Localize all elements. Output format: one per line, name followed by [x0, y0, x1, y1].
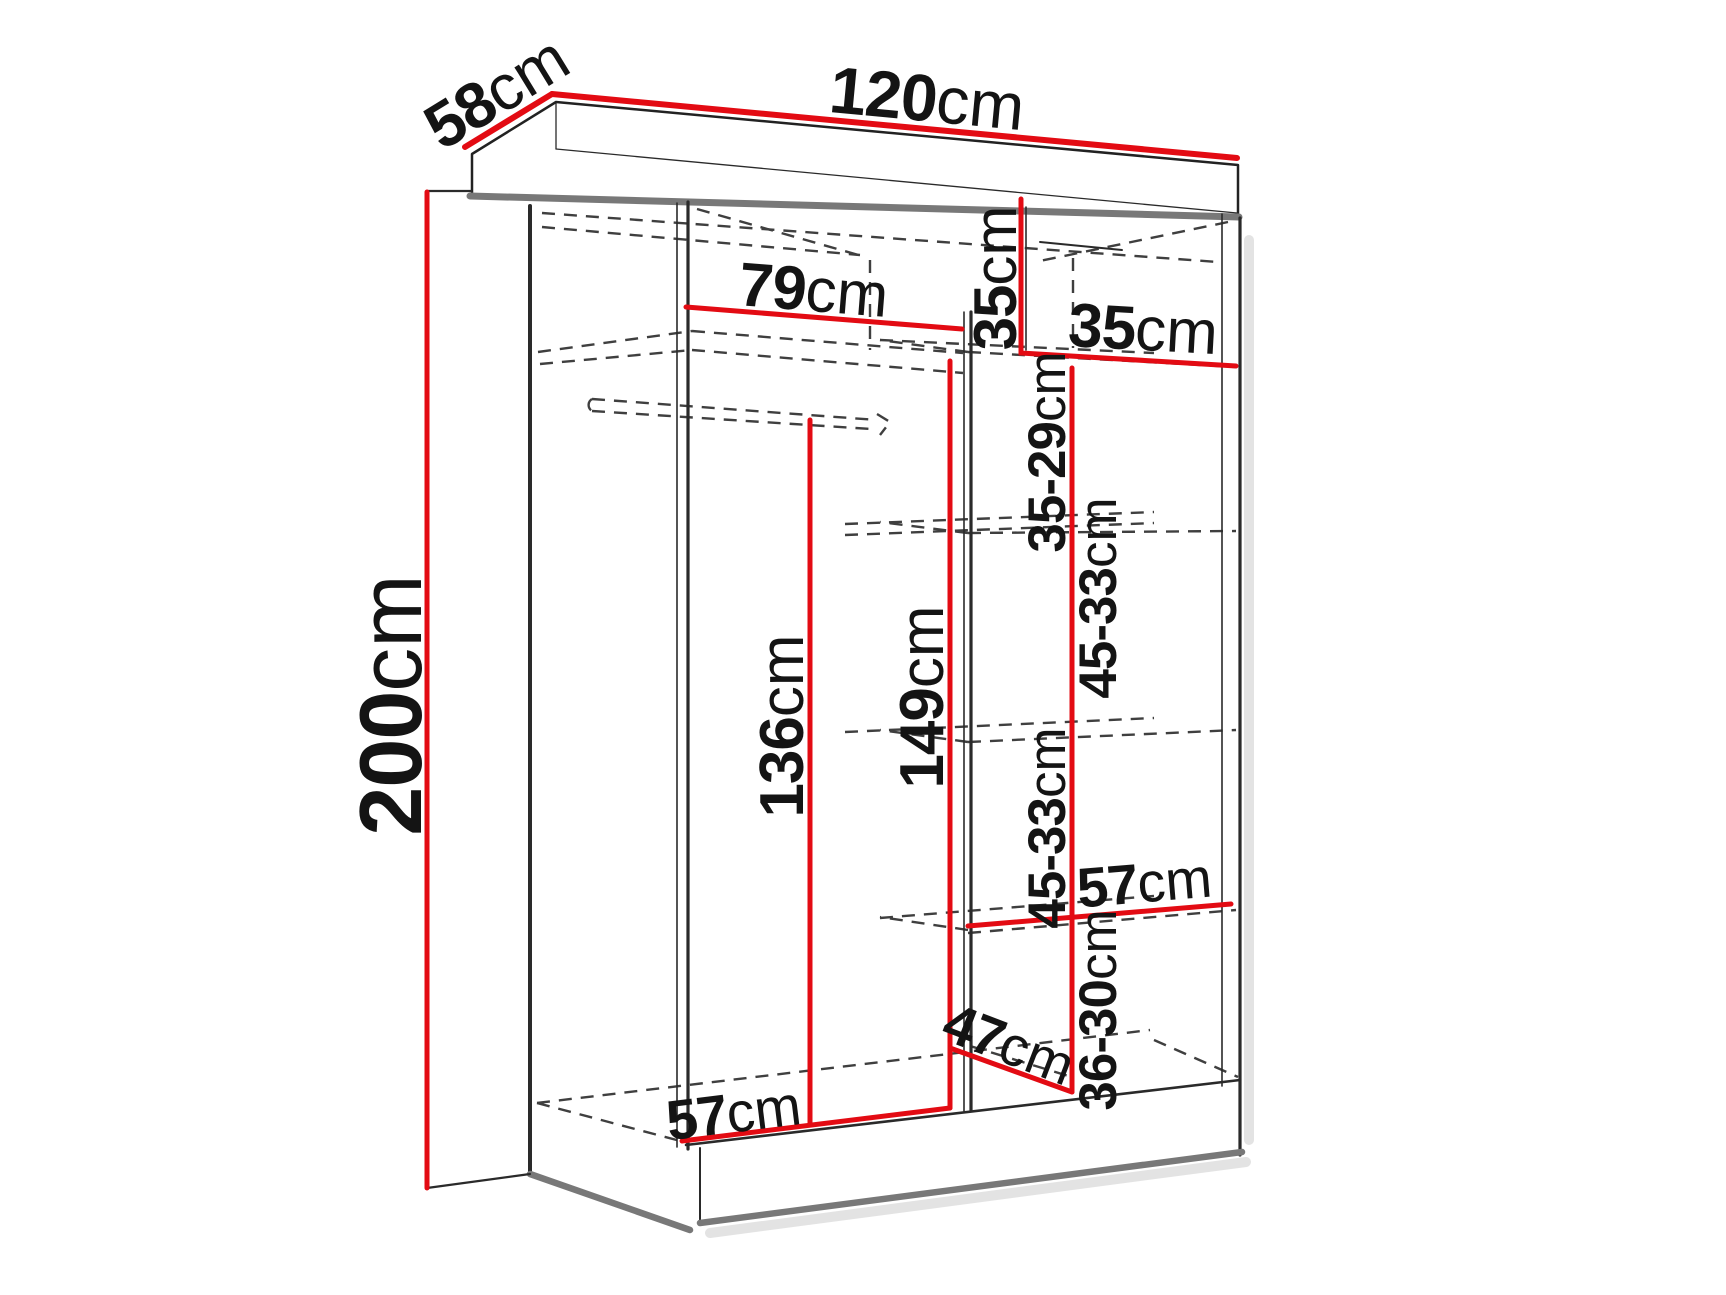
- dim-left-width-label: 79cm: [736, 250, 891, 331]
- dim-right-gap-upper-label: 45-33cm: [1069, 497, 1128, 698]
- hanging-rod-dashed: [589, 399, 890, 435]
- dim-right-gap-bottom-label: 36-30cm: [1069, 909, 1128, 1110]
- dim-right-width-label: 35cm: [1067, 291, 1220, 368]
- dim-hanging-height-label: 136cm: [748, 634, 817, 817]
- height-tick-bottom: [427, 1174, 530, 1188]
- wardrobe-dimension-diagram: 58cm 120cm 200cm 79cm 35cm 35cm 35-29cm …: [0, 0, 1726, 1295]
- dim-height-label: 200cm: [341, 574, 440, 835]
- dim-right-gap-lower-label: 45-33cm: [1018, 727, 1077, 928]
- dim-bottom-depth-label: 47cm: [935, 990, 1084, 1097]
- dim-floor-depth-label: 57cm: [663, 1073, 805, 1152]
- dim-right-height-label: 149cm: [888, 605, 957, 788]
- diagram-canvas: 58cm 120cm 200cm 79cm 35cm 35cm 35-29cm …: [0, 0, 1726, 1295]
- dim-top-height-label: 35cm: [962, 206, 1029, 351]
- dim-right-shelf-label: 57cm: [1074, 846, 1214, 920]
